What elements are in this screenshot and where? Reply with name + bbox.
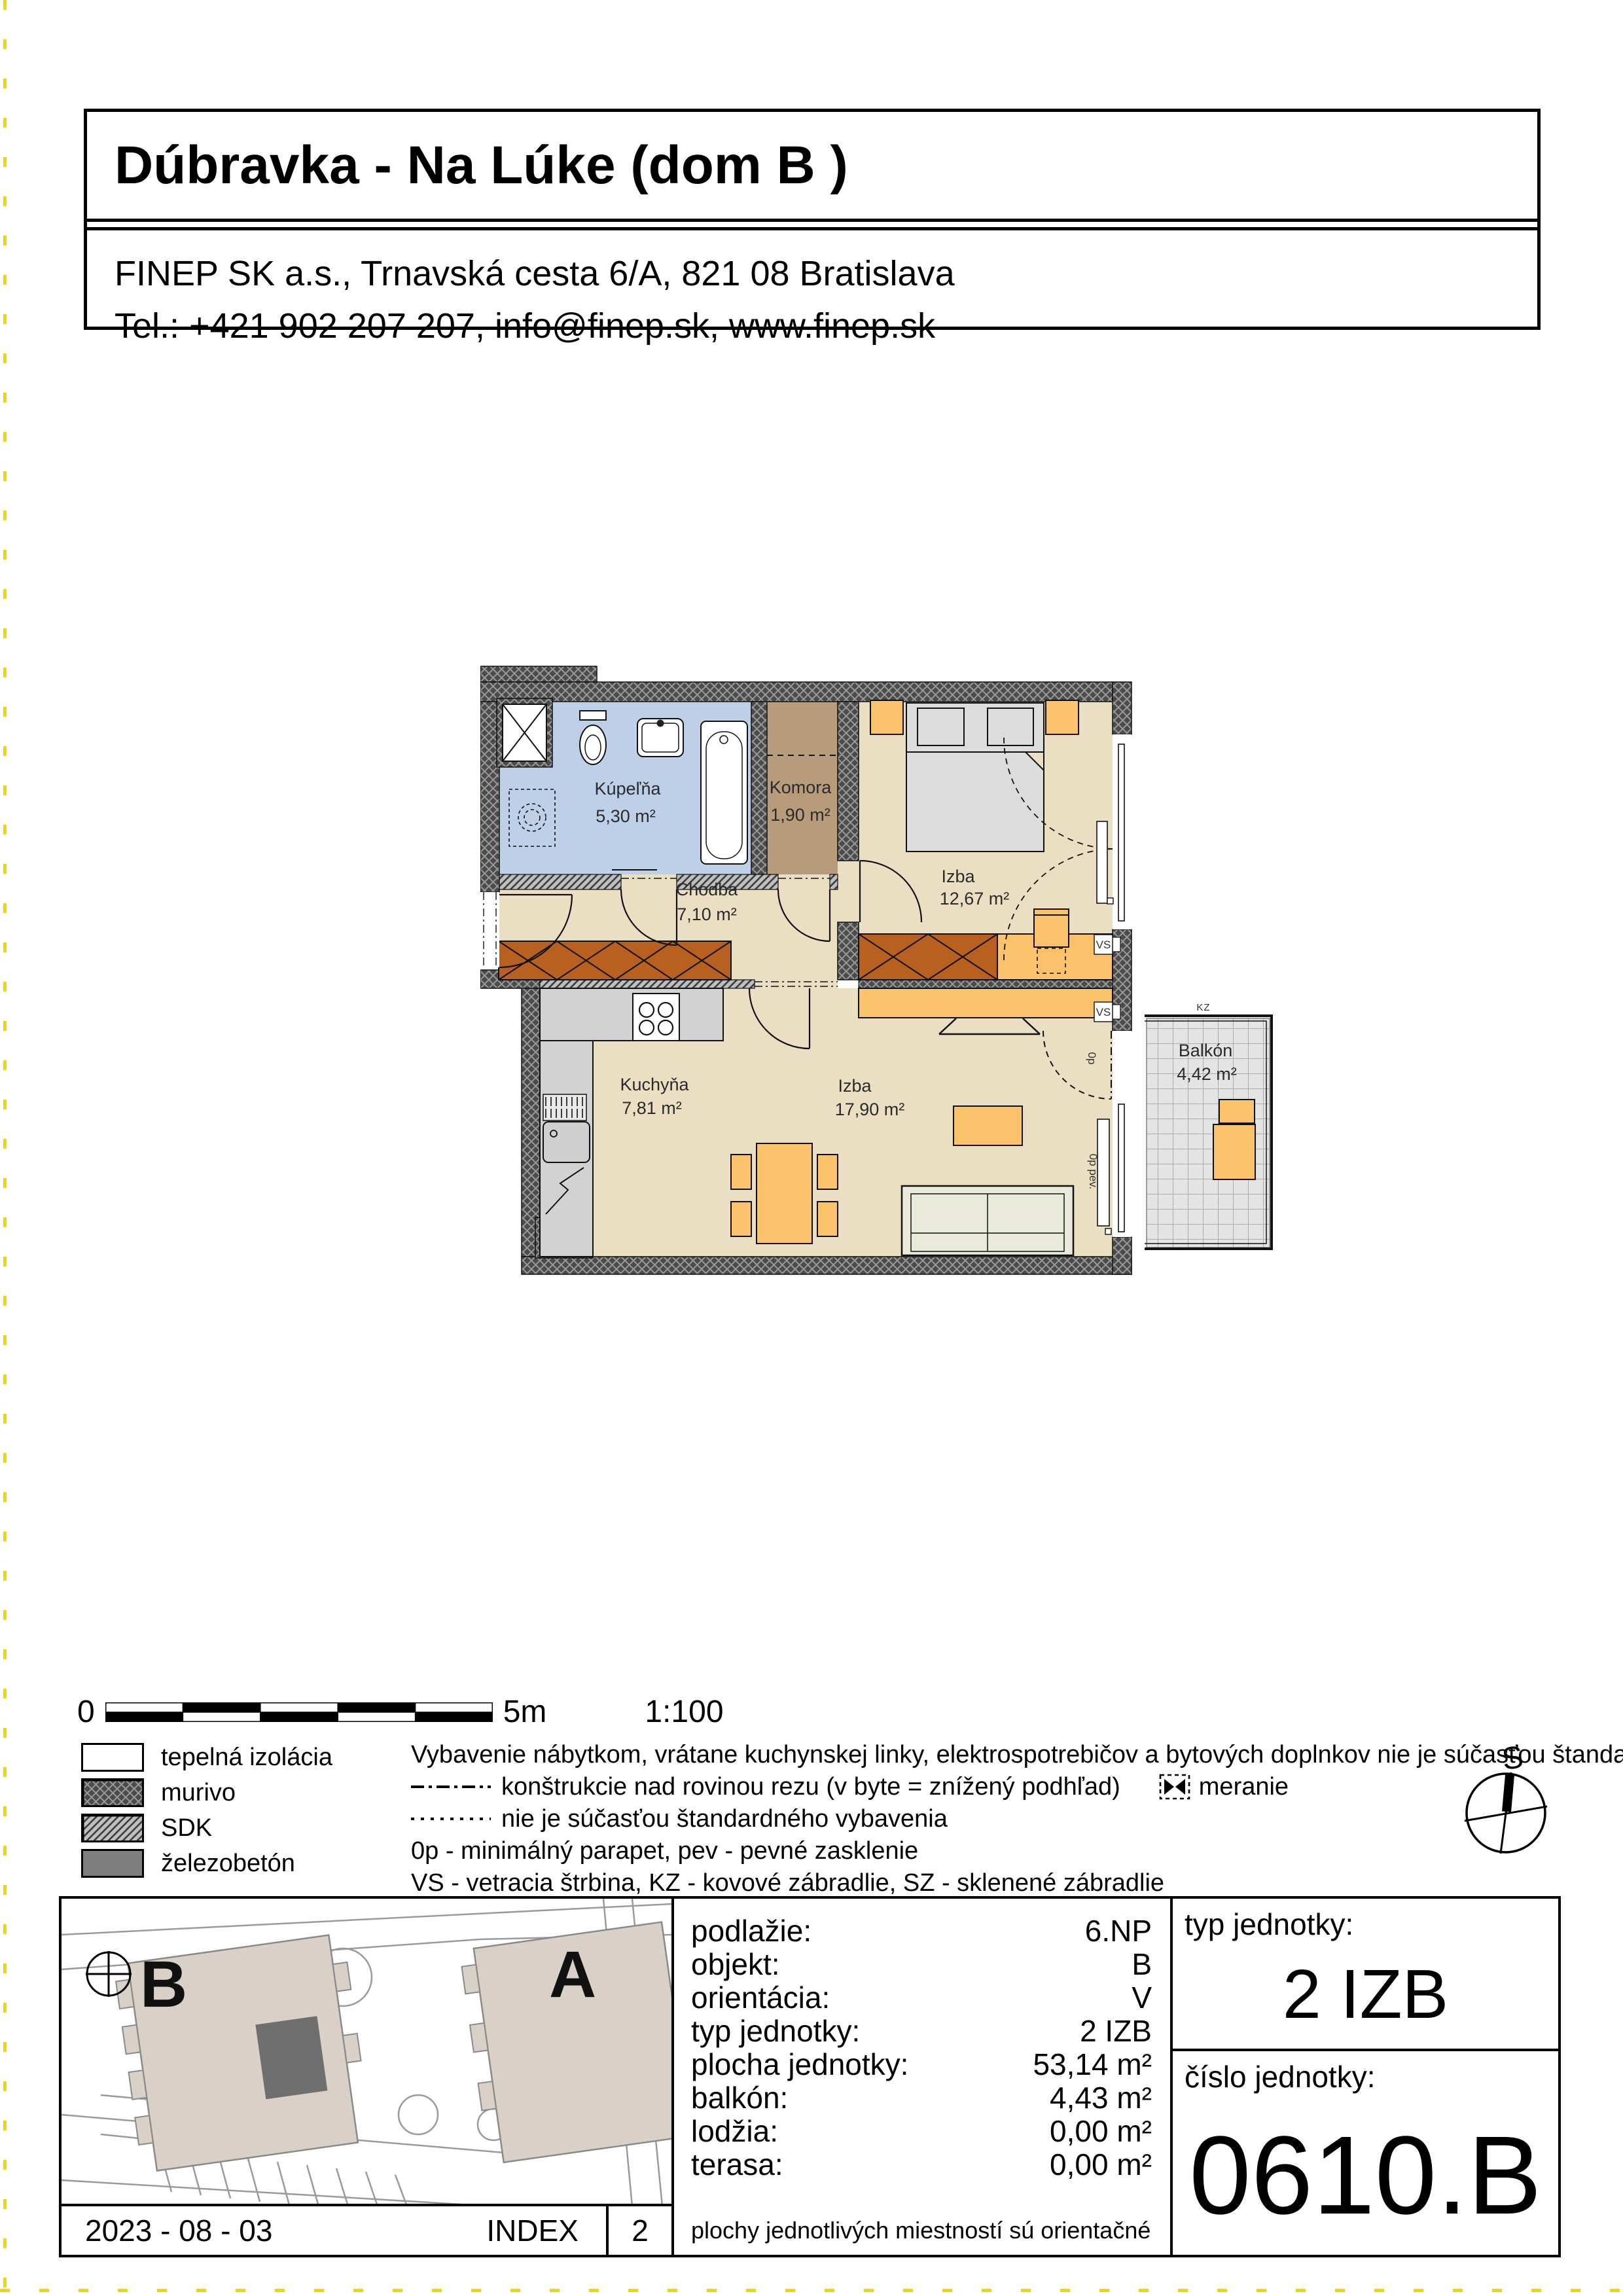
scale-zero: 0	[77, 1694, 95, 1730]
row-value: 2 IZB	[1080, 2013, 1152, 2049]
unit-type-value: 2 IZB	[1173, 1955, 1558, 2034]
legend-label: tepelná izolácia	[161, 1744, 332, 1772]
balcony-table	[1219, 1100, 1255, 1123]
room-area-pantry: 1,90 m²	[770, 805, 830, 825]
table-row: typ jednotky: 2 IZB	[674, 2013, 1170, 2047]
site-plan-drawing: B A	[62, 1899, 671, 2204]
scale-bar-graphic	[105, 1702, 493, 1722]
door-threshold-floor	[755, 980, 838, 988]
note-abbreviations: VS - vetracia štrbina, KZ - kovové zábra…	[411, 1869, 1164, 1897]
areas-note: plochy jednotlivých miestností sú orient…	[691, 2217, 1150, 2244]
nightstand-left	[870, 700, 903, 734]
dashdot-line-icon	[411, 1784, 491, 1790]
note-row: 0p - minimálný parapet, pev - pevné zask…	[411, 1839, 1471, 1863]
page-title: Dúbravka - Na Lúke (dom B )	[115, 135, 848, 196]
index-value: 2	[606, 2206, 671, 2255]
hall-wardrobe	[499, 941, 731, 980]
unit-type-label: typ jednotky:	[1185, 1907, 1353, 1942]
bathroom-sink	[637, 719, 683, 757]
room-area-living: 17,90 m²	[835, 1100, 905, 1119]
bedroom-wardrobe	[859, 934, 1113, 980]
legend-item: murivo	[81, 1778, 332, 1808]
legend-label: murivo	[161, 1779, 236, 1807]
scale-ratio: 1:100	[645, 1694, 723, 1730]
room-label-bedroom: Izba	[941, 867, 975, 886]
swatch-concrete	[81, 1849, 144, 1878]
building-b-label: B	[140, 1948, 187, 2021]
op-label: 0p	[1086, 1052, 1098, 1065]
site-plan-cell: B A 2023 - 08 - 03 INDEX 2	[62, 1899, 674, 2255]
unit-number-value: 0610.B	[1173, 2111, 1558, 2240]
swatch-sdk	[81, 1814, 144, 1842]
op-pev-label: 0p pev.	[1087, 1154, 1099, 1190]
note-parapet: 0p - minimálný parapet, pev - pevné zask…	[411, 1837, 918, 1865]
note-row: VS - vetracia štrbina, KZ - kovové zábra…	[411, 1871, 1471, 1895]
compass: S	[1450, 1741, 1568, 1869]
table-row: podlažie: 6.NP	[674, 1913, 1170, 1946]
row-value: 0,00 m²	[1050, 2147, 1152, 2182]
row-label: podlažie:	[691, 1913, 811, 1948]
room-label-pantry: Komora	[770, 778, 832, 797]
toilet	[580, 711, 606, 764]
building-a-label: A	[549, 1938, 596, 2011]
vs-label-bottom: VS	[1096, 1006, 1111, 1018]
table-row: terasa: 0,00 m²	[674, 2147, 1170, 2180]
unit-details-cell: podlažie: 6.NP objekt: B orientácia: V t…	[674, 1899, 1173, 2255]
meranie-label: meranie	[1199, 1773, 1289, 1801]
room-label-kitchen: Kuchyňa	[620, 1075, 689, 1094]
legend-label: SDK	[161, 1814, 212, 1842]
revision-strip: 2023 - 08 - 03 INDEX 2	[62, 2204, 671, 2255]
note-row: Vybavenie nábytkom, vrátane kuchynskej l…	[411, 1742, 1471, 1767]
bathtub	[701, 721, 747, 864]
row-label: typ jednotky:	[691, 2013, 860, 2049]
room-area-kitchen: 7,81 m²	[622, 1098, 682, 1118]
meranie-icon	[1158, 1773, 1191, 1801]
door-threshold-floor	[838, 861, 859, 922]
row-label: plocha jednotky:	[691, 2047, 908, 2082]
revision-date: 2023 - 08 - 03	[62, 2213, 486, 2248]
unit-id-cell: typ jednotky: 2 IZB číslo jednotky: 0610…	[1173, 1899, 1558, 2255]
legend-notes: Vybavenie nábytkom, vrátane kuchynskej l…	[411, 1742, 1471, 1903]
balcony-chair	[1213, 1124, 1255, 1179]
row-label: orientácia:	[691, 1980, 830, 2015]
row-value: 4,43 m²	[1050, 2080, 1152, 2115]
room-label-bathroom: Kúpeľňa	[595, 779, 662, 798]
note-row: nie je súčasťou štandardného vybavenia	[411, 1806, 1471, 1831]
table-row: balkón: 4,43 m²	[674, 2080, 1170, 2113]
kitchen-sink	[543, 1122, 590, 1162]
cooktop	[633, 994, 679, 1041]
vent-slit-icon	[1113, 937, 1120, 952]
sofa	[902, 1186, 1073, 1255]
legend-label: železobetón	[161, 1850, 295, 1878]
info-table: B A 2023 - 08 - 03 INDEX 2 podlažie: 6.N…	[59, 1896, 1561, 2257]
room-label-hall: Chodba	[676, 880, 739, 899]
page: Dúbravka - Na Lúke (dom B ) FINEP SK a.s…	[0, 0, 1623, 2296]
legend-item: tepelná izolácia	[81, 1742, 332, 1772]
unit-type-box: typ jednotky: 2 IZB	[1173, 1899, 1558, 2051]
table-row: lodžia: 0,00 m²	[674, 2113, 1170, 2147]
scale-length: 5m	[503, 1694, 547, 1730]
row-label: balkón:	[691, 2080, 788, 2115]
unit-number-label: číslo jednotky:	[1185, 2059, 1375, 2094]
row-value: 0,00 m²	[1050, 2113, 1152, 2149]
nightstand-right	[1046, 700, 1079, 734]
material-legend: tepelná izolácia murivo SDK železobetón	[81, 1742, 332, 1884]
swatch-masonry	[81, 1778, 144, 1807]
vent-slit-icon	[1113, 1005, 1120, 1019]
kz-label: KZ	[1196, 1002, 1210, 1013]
row-value: B	[1132, 1946, 1152, 1982]
shaft-bathroom	[503, 704, 546, 761]
row-value: 53,14 m²	[1033, 2047, 1152, 2082]
table-row: objekt: B	[674, 1946, 1170, 1980]
note-nonstandard: nie je súčasťou štandardného vybavenia	[501, 1805, 948, 1833]
legend-item: SDK	[81, 1813, 332, 1843]
unit-highlight	[255, 2016, 327, 2099]
unit-number-box: číslo jednotky: 0610.B	[1173, 2051, 1558, 2255]
floor-plan: Kúpeľňa 5,30 m² Komora 1,90 m² Chodba 7,…	[480, 662, 1275, 1281]
vs-label-top: VS	[1096, 939, 1111, 951]
kitchen-vent	[543, 1094, 586, 1121]
floor-plan-drawing: Kúpeľňa 5,30 m² Komora 1,90 m² Chodba 7,…	[480, 662, 1275, 1278]
room-area-hall: 7,10 m²	[677, 905, 737, 924]
row-value: 6.NP	[1085, 1913, 1152, 1948]
perforation-marks-bottom	[0, 2289, 1623, 2292]
compass-rose: S	[1450, 1741, 1568, 1865]
header-box: Dúbravka - Na Lúke (dom B ) FINEP SK a.s…	[84, 109, 1541, 330]
room-area-bedroom: 12,67 m²	[940, 889, 1010, 908]
compass-needle	[1507, 1775, 1510, 1812]
company-address: FINEP SK a.s., Trnavská cesta 6/A, 821 0…	[115, 247, 1537, 300]
row-label: objekt:	[691, 1946, 780, 1982]
perforation-marks-left	[3, 0, 7, 2296]
legend-item: železobetón	[81, 1848, 332, 1878]
site-plan: B A	[62, 1899, 671, 2204]
room-area-balcony: 4,42 m²	[1177, 1064, 1237, 1084]
compass-north-label: S	[1500, 1741, 1525, 1777]
table-row: plocha jednotky: 53,14 m²	[674, 2047, 1170, 2080]
note-constructions: konštrukcie nad rovinou rezu (v byte = z…	[501, 1773, 1120, 1801]
table-row: orientácia: V	[674, 1980, 1170, 2013]
note-row: konštrukcie nad rovinou rezu (v byte = z…	[411, 1774, 1471, 1799]
room-label-balcony: Balkón	[1179, 1041, 1233, 1060]
title-cell: Dúbravka - Na Lúke (dom B )	[87, 112, 1537, 222]
note-furniture: Vybavenie nábytkom, vrátane kuchynskej l…	[411, 1741, 1623, 1769]
coffee-table	[954, 1106, 1022, 1145]
swatch-insulation	[81, 1743, 144, 1772]
address-cell: FINEP SK a.s., Trnavská cesta 6/A, 821 0…	[87, 227, 1537, 352]
door-threshold-floor	[778, 874, 830, 889]
scale-bar: 0 5m 1:100	[77, 1694, 724, 1730]
row-label: terasa:	[691, 2147, 783, 2182]
row-label: lodžia:	[691, 2113, 778, 2149]
company-contacts: Tel.: +421 902 207 207, info@finep.sk, w…	[115, 300, 1537, 352]
room-area-bathroom: 5,30 m²	[596, 806, 656, 826]
dining-table	[757, 1143, 812, 1244]
room-label-living: Izba	[838, 1076, 872, 1096]
row-value: V	[1132, 1980, 1152, 2015]
index-label: INDEX	[486, 2213, 606, 2248]
dotted-line-icon	[411, 1816, 491, 1822]
door-threshold-floor	[621, 874, 677, 889]
